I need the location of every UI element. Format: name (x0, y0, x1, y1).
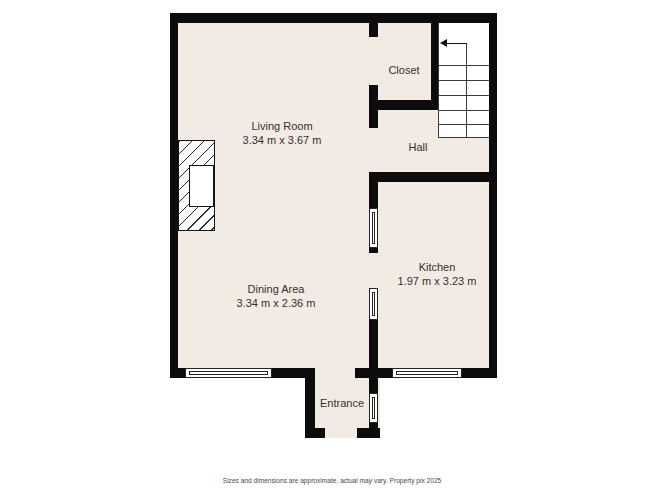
window-interior-upper (369, 208, 378, 248)
fireplace (178, 140, 215, 231)
wall-closet-bottom (369, 100, 438, 110)
stair-arrow-icon (440, 39, 447, 47)
wall-hall-kitchen (369, 172, 497, 182)
room-dims: 3.34 m x 2.36 m (237, 297, 316, 311)
wall-top (170, 13, 497, 23)
wall-entrance-right-foot (357, 428, 380, 438)
window-interior-lower (369, 288, 378, 320)
stair-step-line (439, 65, 489, 66)
wall-closet-right (431, 23, 438, 110)
stair-step-line (439, 124, 489, 125)
room-dims: 1.97 m x 3.23 m (398, 275, 477, 289)
wall-left (170, 13, 178, 378)
room-label-kitchen: Kitchen 1.97 m x 3.23 m (398, 261, 477, 288)
wall-entrance-left-foot (305, 428, 325, 438)
wall-divider-upper (369, 172, 378, 208)
wall-closet-left-upper (369, 23, 378, 37)
fireplace-hearth (189, 165, 214, 207)
room-name: Entrance (320, 397, 364, 411)
stair-step-line (439, 95, 489, 96)
room-label-closet: Closet (388, 64, 419, 78)
disclaimer-text: Sizes and dimensions are approximate, ac… (223, 477, 442, 484)
staircase (438, 23, 489, 138)
wall-right (489, 13, 497, 378)
window-kitchen (392, 368, 462, 378)
window-entrance (369, 393, 378, 423)
stair-step-line (439, 110, 489, 111)
room-label-entrance: Entrance (320, 397, 364, 411)
wall-bottom-segment (170, 368, 185, 378)
wall-bottom-segment (462, 368, 497, 378)
room-dims: 3.34 m x 3.67 m (243, 134, 322, 148)
window-dining (185, 368, 272, 378)
room-label-living-room: Living Room 3.34 m x 3.67 m (243, 120, 322, 147)
room-name: Closet (388, 64, 419, 78)
room-label-dining-area: Dining Area 3.34 m x 2.36 m (237, 283, 316, 310)
floor-plan: Living Room 3.34 m x 3.67 m Closet Hall … (0, 0, 668, 501)
stair-direction-line (466, 43, 467, 137)
wall-divider-cap (369, 248, 378, 253)
room-name: Hall (409, 141, 428, 155)
stair-step-line (439, 80, 489, 81)
wall-divider-lower (369, 320, 378, 393)
room-name: Dining Area (237, 283, 316, 297)
room-label-hall: Hall (409, 141, 428, 155)
room-name: Kitchen (398, 261, 477, 275)
wall-entrance-left (305, 368, 315, 428)
room-name: Living Room (243, 120, 322, 134)
